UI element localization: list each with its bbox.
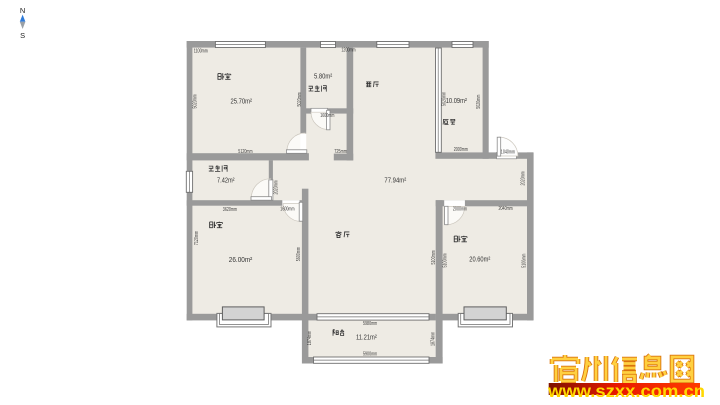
svg-text:2020mm: 2020mm: [520, 171, 526, 185]
svg-text:5600mm: 5600mm: [296, 247, 302, 261]
svg-text:5980mm: 5980mm: [363, 321, 377, 327]
svg-text:725mm: 725mm: [334, 149, 347, 155]
svg-text:1874mm: 1874mm: [307, 331, 313, 345]
svg-text:25.70m²: 25.70m²: [231, 96, 253, 105]
svg-text:5020mm: 5020mm: [442, 92, 448, 106]
svg-text:www.szxx.com.cn: www.szxx.com.cn: [547, 381, 705, 401]
svg-text:5100mm: 5100mm: [443, 253, 449, 267]
svg-text:7120mm: 7120mm: [194, 231, 200, 245]
svg-text:N: N: [20, 6, 25, 15]
svg-text:1874mm: 1874mm: [430, 332, 436, 346]
svg-text:5020mm: 5020mm: [476, 95, 482, 109]
svg-text:1040mm: 1040mm: [501, 149, 515, 155]
svg-text:77.94m²: 77.94m²: [384, 175, 406, 184]
svg-text:10.09m²: 10.09m²: [446, 96, 468, 105]
svg-text:5100mm: 5100mm: [521, 254, 527, 268]
svg-text:5900mm: 5900mm: [363, 352, 377, 358]
svg-text:20.60m²: 20.60m²: [469, 255, 490, 264]
svg-text:2000mm: 2000mm: [453, 207, 467, 213]
svg-text:2020mm: 2020mm: [273, 180, 279, 194]
svg-text:26.00m²: 26.00m²: [229, 255, 253, 264]
svg-text:1100mm: 1100mm: [194, 48, 208, 54]
svg-text:2000mm: 2000mm: [454, 147, 468, 153]
svg-text:5100mm: 5100mm: [431, 250, 437, 264]
svg-text:11.21m²: 11.21m²: [356, 332, 377, 341]
svg-text:2040mm: 2040mm: [499, 206, 513, 212]
svg-text:5020mm: 5020mm: [297, 92, 303, 106]
svg-text:5120mm: 5120mm: [238, 149, 252, 155]
svg-text:1600mm: 1600mm: [320, 113, 334, 119]
svg-text:5020mm: 5020mm: [193, 94, 199, 108]
svg-text:1600mm: 1600mm: [280, 206, 294, 212]
svg-text:S: S: [20, 31, 25, 40]
svg-text:1200mm: 1200mm: [341, 48, 355, 54]
svg-text:7.42m²: 7.42m²: [217, 175, 235, 184]
svg-text:5.80m²: 5.80m²: [314, 72, 333, 81]
svg-text:3620mm: 3620mm: [223, 207, 237, 213]
